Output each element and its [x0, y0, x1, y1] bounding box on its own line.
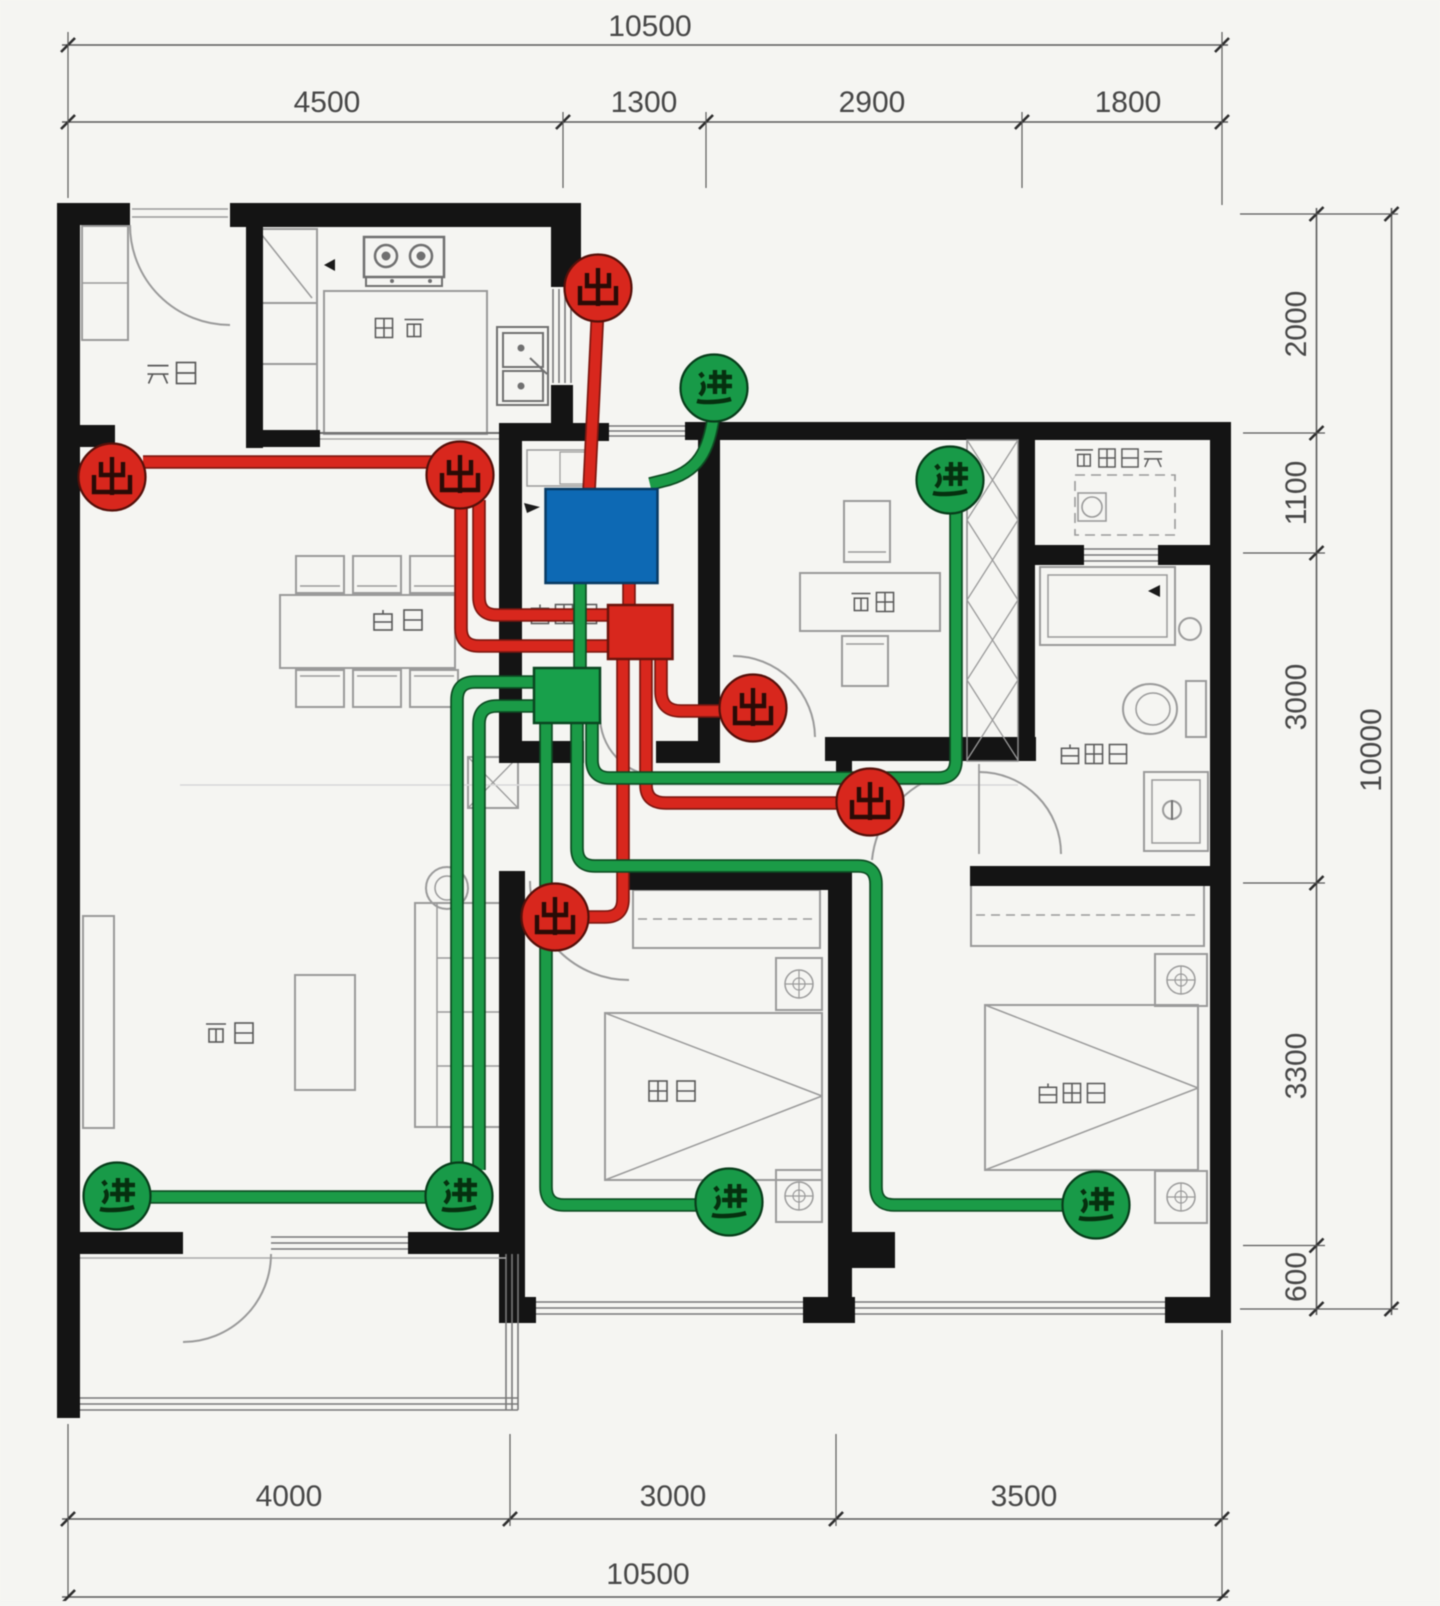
svg-text:1100: 1100	[1280, 461, 1313, 526]
svg-text:3000: 3000	[640, 1480, 707, 1513]
svg-text:2000: 2000	[1280, 291, 1313, 358]
svg-text:600: 600	[1280, 1252, 1313, 1302]
svg-text:10500: 10500	[608, 10, 691, 43]
svg-text:1300: 1300	[611, 86, 678, 119]
svg-text:1800: 1800	[1095, 86, 1162, 119]
svg-text:4000: 4000	[256, 1480, 323, 1513]
svg-text:3500: 3500	[991, 1480, 1058, 1513]
svg-text:10500: 10500	[606, 1558, 689, 1591]
svg-text:3300: 3300	[1280, 1033, 1313, 1100]
svg-text:2900: 2900	[839, 86, 906, 119]
svg-text:10000: 10000	[1355, 708, 1388, 791]
svg-text:4500: 4500	[294, 86, 361, 119]
svg-text:3000: 3000	[1280, 664, 1313, 731]
